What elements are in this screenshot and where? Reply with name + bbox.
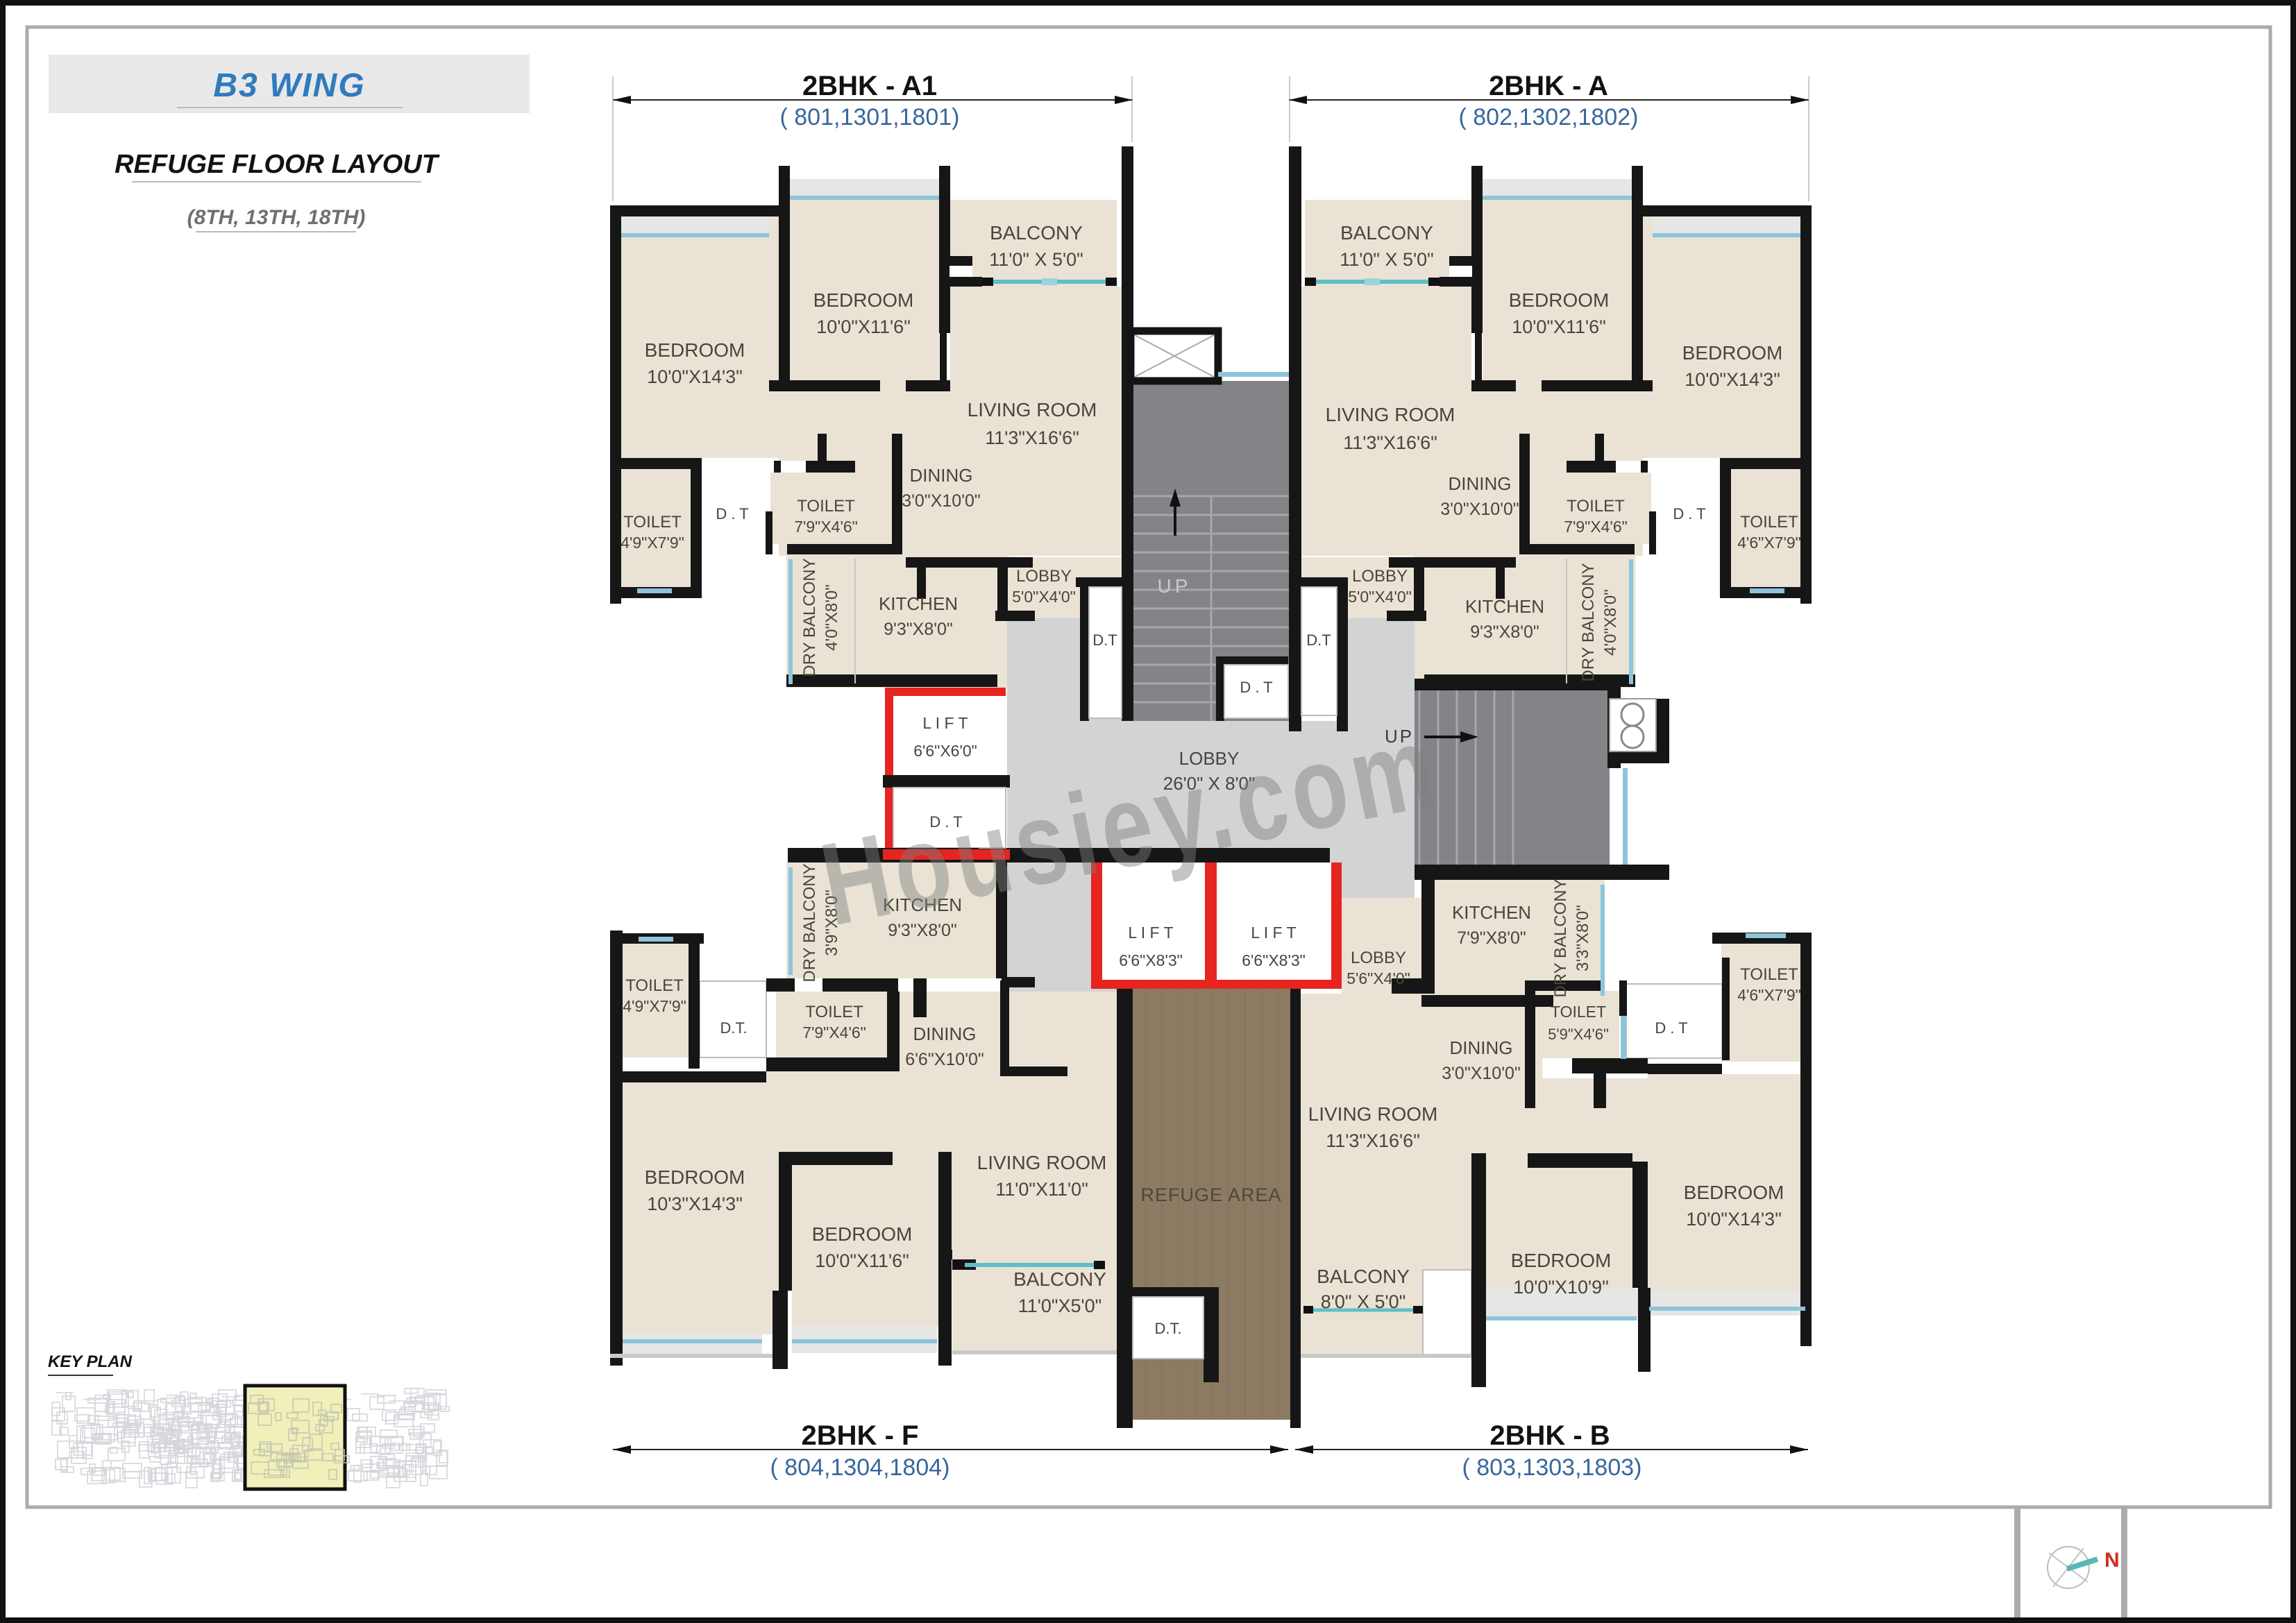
svg-text:9'3"X8'0": 9'3"X8'0" (1470, 622, 1539, 642)
svg-text:10'0"X11'6": 10'0"X11'6" (1512, 316, 1606, 337)
svg-text:DRY BALCONY: DRY BALCONY (1551, 878, 1570, 997)
svg-text:KEY PLAN: KEY PLAN (48, 1352, 133, 1371)
svg-text:11'0" X 5'0": 11'0" X 5'0" (989, 249, 1083, 270)
svg-text:10'3"X14'3": 10'3"X14'3" (647, 1193, 743, 1214)
svg-text:10'0"X10'9": 10'0"X10'9" (1513, 1277, 1609, 1298)
svg-text:BEDROOM: BEDROOM (1509, 289, 1610, 311)
svg-text:(8TH, 13TH, 18TH): (8TH, 13TH, 18TH) (187, 206, 366, 229)
svg-text:BEDROOM: BEDROOM (645, 1166, 745, 1188)
svg-text:LOBBY: LOBBY (1352, 567, 1408, 586)
svg-text:BEDROOM: BEDROOM (813, 289, 914, 311)
svg-text:BEDROOM: BEDROOM (1684, 1182, 1784, 1203)
svg-text:BEDROOM: BEDROOM (1682, 342, 1783, 364)
svg-text:TOILET: TOILET (1740, 965, 1798, 984)
svg-text:BALCONY: BALCONY (1013, 1268, 1106, 1290)
svg-text:TOILET: TOILET (1551, 1003, 1606, 1021)
svg-text:4'9"X7'9": 4'9"X7'9" (621, 534, 684, 552)
svg-text:L I F T: L I F T (1128, 924, 1173, 942)
svg-text:REFUGE AREA: REFUGE AREA (1140, 1184, 1281, 1205)
svg-text:2BHK - F: 2BHK - F (802, 1420, 919, 1451)
svg-text:7'9"X8'0": 7'9"X8'0" (1457, 928, 1526, 948)
svg-text:D.T: D.T (1092, 631, 1117, 649)
svg-text:LIVING ROOM: LIVING ROOM (977, 1152, 1107, 1173)
svg-text:D . T: D . T (1240, 679, 1272, 696)
svg-text:DINING: DINING (910, 465, 973, 486)
svg-text:11'0" X 5'0": 11'0" X 5'0" (1340, 249, 1434, 270)
svg-text:TOILET: TOILET (623, 513, 682, 532)
svg-text:6'6"X8'3": 6'6"X8'3" (1242, 951, 1306, 969)
svg-text:DINING: DINING (913, 1023, 977, 1044)
svg-text:5'6"X4'0": 5'6"X4'0" (1347, 969, 1410, 987)
svg-text:BALCONY: BALCONY (990, 222, 1083, 244)
svg-text:( 801,1301,1801): ( 801,1301,1801) (780, 104, 960, 130)
svg-text:LOBBY: LOBBY (1351, 949, 1406, 967)
svg-text:4'0"X8'0": 4'0"X8'0" (1601, 589, 1620, 656)
svg-text:LIVING ROOM: LIVING ROOM (1326, 404, 1455, 425)
svg-text:6'6"X10'0": 6'6"X10'0" (905, 1050, 984, 1069)
svg-text:DINING: DINING (1449, 473, 1512, 494)
svg-text:BEDROOM: BEDROOM (812, 1223, 913, 1245)
svg-text:BEDROOM: BEDROOM (1511, 1250, 1612, 1271)
svg-text:D.T: D.T (1306, 631, 1331, 649)
svg-text:BALCONY: BALCONY (1340, 222, 1433, 244)
svg-text:D.T.: D.T. (1154, 1320, 1181, 1337)
svg-text:LIVING ROOM: LIVING ROOM (968, 399, 1097, 420)
svg-text:BALCONY: BALCONY (1317, 1266, 1410, 1287)
svg-text:10'0"X14'3": 10'0"X14'3" (1686, 1209, 1782, 1230)
svg-text:DINING: DINING (1450, 1037, 1513, 1058)
svg-text:KITCHEN: KITCHEN (1465, 596, 1544, 617)
svg-text:DRY BALCONY: DRY BALCONY (1579, 563, 1598, 681)
svg-text:3'0"X10'0": 3'0"X10'0" (1442, 1064, 1521, 1083)
svg-text:6'6"X8'3": 6'6"X8'3" (1119, 951, 1183, 969)
svg-text:TOILET: TOILET (625, 976, 684, 995)
svg-text:TOILET: TOILET (1567, 497, 1625, 516)
svg-text:11'3"X16'6": 11'3"X16'6" (1326, 1130, 1420, 1151)
svg-text:KITCHEN: KITCHEN (1452, 902, 1531, 923)
svg-text:TOILET: TOILET (805, 1003, 863, 1021)
svg-text:7'9"X4'6": 7'9"X4'6" (1564, 518, 1628, 536)
svg-text:2BHK - A1: 2BHK - A1 (802, 71, 937, 101)
svg-text:TOILET: TOILET (1740, 513, 1798, 532)
svg-text:10'0"X11'6": 10'0"X11'6" (816, 316, 911, 337)
svg-text:3'0"X10'0": 3'0"X10'0" (1440, 500, 1519, 519)
svg-text:5'9"X4'6": 5'9"X4'6" (1548, 1026, 1609, 1043)
svg-text:KITCHEN: KITCHEN (879, 593, 958, 614)
svg-text:L I F T: L I F T (922, 714, 968, 732)
svg-text:N: N (2104, 1549, 2120, 1572)
svg-text:5'0"X4'0": 5'0"X4'0" (1012, 588, 1076, 606)
svg-text:3'3"X8'0": 3'3"X8'0" (1573, 905, 1592, 971)
svg-text:LIVING ROOM: LIVING ROOM (1308, 1103, 1438, 1125)
svg-text:10'0"X14'3": 10'0"X14'3" (647, 366, 743, 387)
svg-text:D . T: D . T (716, 505, 748, 522)
svg-text:4'9"X7'9": 4'9"X7'9" (623, 997, 686, 1015)
svg-text:11'0"X5'0": 11'0"X5'0" (1018, 1295, 1102, 1316)
svg-text:2BHK - A: 2BHK - A (1489, 71, 1608, 101)
svg-text:2BHK - B: 2BHK - B (1489, 1420, 1610, 1451)
svg-text:BEDROOM: BEDROOM (645, 339, 745, 361)
svg-text:4'0"X8'0": 4'0"X8'0" (822, 584, 841, 651)
svg-text:D . T: D . T (1673, 505, 1705, 522)
svg-text:D.T.: D.T. (720, 1019, 747, 1037)
svg-text:D . T: D . T (1655, 1019, 1687, 1037)
svg-text:( 804,1304,1804): ( 804,1304,1804) (770, 1454, 950, 1481)
svg-text:10'0"X11'6": 10'0"X11'6" (815, 1250, 909, 1271)
svg-text:6'6"X6'0": 6'6"X6'0" (913, 742, 977, 760)
svg-text:UP: UP (1158, 575, 1192, 597)
svg-text:DRY BALCONY: DRY BALCONY (800, 558, 819, 677)
svg-text:11'3"X16'6": 11'3"X16'6" (985, 427, 1079, 448)
svg-text:L I F T: L I F T (1251, 924, 1296, 942)
svg-text:LOBBY: LOBBY (1016, 567, 1072, 586)
svg-text:4'6"X7'9": 4'6"X7'9" (1737, 534, 1801, 552)
svg-text:8'0" X 5'0": 8'0" X 5'0" (1321, 1291, 1406, 1312)
svg-text:B3 WING: B3 WING (213, 67, 365, 104)
svg-text:4'6"X7'9": 4'6"X7'9" (1737, 986, 1801, 1004)
svg-text:7'9"X4'6": 7'9"X4'6" (794, 518, 858, 536)
svg-text:10'0"X14'3": 10'0"X14'3" (1685, 369, 1780, 390)
svg-text:11'0"X11'0": 11'0"X11'0" (995, 1179, 1088, 1200)
svg-text:3'0"X10'0": 3'0"X10'0" (902, 491, 981, 511)
svg-text:5'0"X4'0": 5'0"X4'0" (1348, 588, 1412, 606)
svg-text:11'3"X16'6": 11'3"X16'6" (1343, 432, 1437, 453)
svg-text:DRY BALCONY: DRY BALCONY (800, 863, 819, 982)
svg-text:9'3"X8'0": 9'3"X8'0" (884, 620, 953, 639)
svg-text:( 803,1303,1803): ( 803,1303,1803) (1462, 1454, 1642, 1481)
svg-text:TOILET: TOILET (797, 497, 855, 516)
svg-text:7'9"X4'6": 7'9"X4'6" (802, 1023, 866, 1042)
svg-text:REFUGE FLOOR LAYOUT: REFUGE FLOOR LAYOUT (115, 150, 440, 179)
svg-text:( 802,1302,1802): ( 802,1302,1802) (1459, 104, 1639, 130)
